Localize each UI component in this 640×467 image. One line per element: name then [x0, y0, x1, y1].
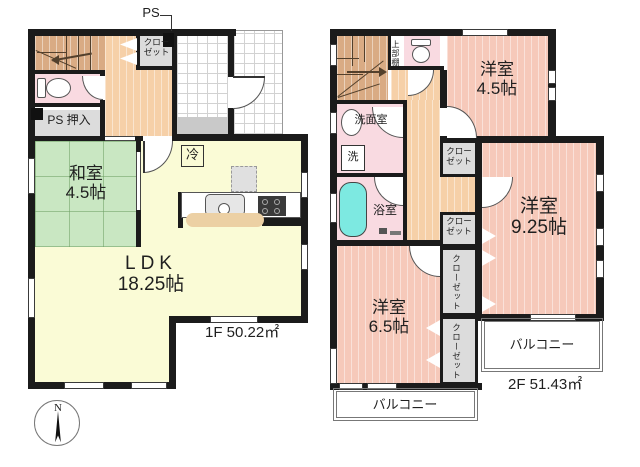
fridge-label: 冷 [181, 148, 204, 163]
bathtub-icon [339, 182, 367, 237]
window [330, 348, 337, 384]
sliding-door [105, 136, 135, 141]
wall [440, 70, 447, 108]
stairs-arrow-head [46, 55, 59, 65]
kitchen-bar [186, 213, 264, 227]
floor1-area-label: 1F 50.22㎡ [205, 325, 305, 342]
stair-line [337, 74, 363, 75]
wall [330, 29, 556, 36]
balcony-east-label: バルコニー [493, 338, 591, 353]
shower-drain-icon [379, 228, 387, 234]
wall [28, 103, 105, 107]
wall [28, 29, 35, 389]
floor2-area-label: 2F 51.43㎡ [508, 377, 618, 394]
ps-top-label: PS [138, 6, 164, 21]
window [330, 44, 337, 66]
wall [28, 70, 105, 74]
stairs-arrow-line [347, 71, 381, 73]
window [548, 87, 556, 101]
toilet-tank-icon [37, 78, 46, 98]
genkan-step [177, 117, 228, 134]
washroom-label: 洗面室 [340, 114, 402, 126]
closet-925-label: クローゼット [451, 251, 461, 313]
toilet-bowl-icon [46, 78, 71, 98]
compass-needle [49, 411, 67, 445]
window [596, 260, 604, 278]
wall [228, 29, 234, 77]
window [210, 316, 258, 323]
bedroom-45-label: 洋室 4.5帖 [447, 60, 547, 98]
window [131, 382, 167, 389]
entrance-closet-label: クロー ゼット [141, 38, 172, 57]
door-leaf [233, 76, 265, 78]
window [462, 29, 508, 36]
pantry-dashed-box [231, 166, 257, 192]
closet-mid-label: クロー ゼット [443, 217, 475, 236]
window [548, 70, 556, 84]
balcony-south-label: バルコニー [345, 398, 465, 413]
bedroom-925-label: 洋室 9.25帖 [486, 196, 592, 239]
toilet-tank-icon [411, 39, 431, 46]
stove-burner [262, 208, 268, 214]
hallway-2f [404, 100, 440, 247]
hallway-2f [440, 177, 478, 212]
wall [548, 29, 556, 143]
closet-65-label: クローゼット [451, 320, 461, 382]
window [64, 382, 104, 389]
window [330, 112, 337, 134]
window [596, 228, 604, 246]
wall [335, 100, 404, 104]
wall [136, 66, 177, 70]
window [301, 244, 308, 270]
wall [169, 316, 176, 389]
window [330, 193, 337, 223]
floor-plan-canvas: PS クロー ゼット PS 押入 和室 4.5帖 冷 LDK 18.25帖 1F… [0, 0, 640, 467]
wall-kitchen-stub [262, 218, 308, 226]
wall [301, 134, 308, 323]
wall [403, 100, 407, 243]
stair-line [364, 36, 365, 62]
stove-burner [274, 199, 280, 205]
door-leaf [143, 141, 145, 173]
ldk-label: LDK 18.25帖 [95, 253, 207, 296]
stove-burner [274, 208, 280, 214]
bathroom-label: 浴室 [368, 204, 402, 217]
ps-oshiire-label: PS 押入 [38, 114, 100, 127]
stair-line [352, 36, 353, 66]
bedroom-65-label: 洋室 6.5帖 [339, 298, 439, 336]
washitsu-label: 和室 4.5帖 [40, 164, 132, 202]
upper-shelf-label: 上部棚 [390, 37, 399, 69]
wall [28, 29, 236, 36]
wall [176, 134, 308, 141]
window [596, 174, 604, 192]
window [28, 278, 35, 318]
window [301, 172, 308, 198]
stair-line [78, 36, 79, 70]
sliding-door [136, 152, 141, 210]
stair-line [337, 58, 359, 59]
closet-hall-label: クロー ゼット [443, 147, 475, 166]
washer-label: 洗 [341, 151, 365, 163]
wall [475, 143, 482, 314]
wall [228, 108, 234, 141]
shower-drain-icon [390, 231, 401, 235]
stove-burner [262, 199, 268, 205]
toilet-bowl-icon [412, 46, 430, 63]
compass-icon: N [34, 400, 80, 446]
window [28, 158, 35, 194]
